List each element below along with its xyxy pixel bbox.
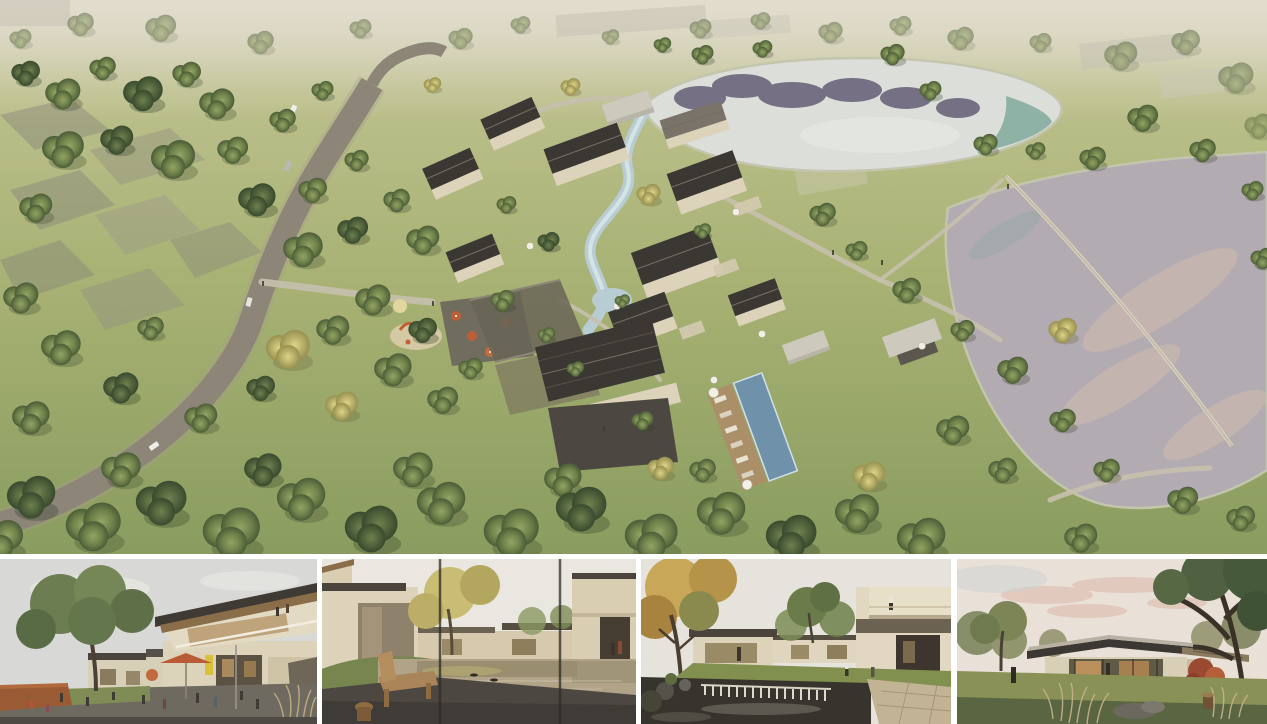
- stool-base: [357, 707, 371, 721]
- person: [163, 699, 166, 709]
- courtyard-street-rendering: [0, 559, 317, 724]
- thumbnail-garden-waterfall: [641, 559, 951, 724]
- rock: [679, 679, 691, 691]
- balcony-slab: [869, 615, 951, 619]
- person: [60, 693, 63, 702]
- tree-canopy: [110, 589, 154, 633]
- tree-canopy: [68, 597, 116, 645]
- upper-balcony: [869, 587, 951, 617]
- tree-canopy: [460, 565, 500, 605]
- person: [214, 697, 217, 707]
- roof-slab: [572, 573, 636, 579]
- tree-canopy: [1153, 569, 1189, 605]
- bench-leg: [384, 689, 389, 707]
- balcony-slab: [572, 613, 636, 617]
- walking-person: [618, 641, 622, 654]
- tree-canopy: [16, 609, 56, 649]
- person: [881, 260, 883, 265]
- white-umbrella: [919, 343, 926, 350]
- lit-window: [222, 659, 234, 677]
- orange-umbrella: [467, 331, 477, 341]
- glass-pavilion-rendering: [957, 559, 1267, 724]
- bench-leg: [426, 683, 431, 699]
- moss-shrub: [665, 673, 677, 685]
- tree-canopy: [810, 582, 840, 612]
- person: [1007, 184, 1009, 189]
- koi: [490, 679, 498, 682]
- person: [112, 692, 115, 700]
- play-equipment: [406, 340, 411, 345]
- reflection: [701, 703, 821, 715]
- white-umbrella: [759, 331, 766, 338]
- cloud: [200, 571, 300, 591]
- tree-canopy: [679, 591, 719, 631]
- reflection: [651, 712, 711, 722]
- rendering-board: [0, 0, 1267, 724]
- child: [30, 701, 33, 708]
- balcony-person: [286, 604, 289, 613]
- person: [142, 695, 145, 704]
- person: [432, 301, 434, 306]
- person: [240, 691, 243, 700]
- lit-interior: [903, 641, 915, 663]
- person: [603, 426, 605, 431]
- rock: [641, 690, 662, 712]
- person: [196, 693, 199, 703]
- person-legs: [845, 669, 849, 676]
- aerial-masterplan-rendering: [0, 0, 1267, 554]
- water-sheen: [800, 117, 960, 153]
- lit-window: [244, 661, 256, 677]
- foreground-shadow: [0, 717, 317, 724]
- roof-slab: [322, 583, 406, 591]
- glass-reflection: [362, 607, 382, 661]
- person: [262, 281, 264, 286]
- shop-window: [100, 669, 116, 685]
- white-umbrella: [527, 243, 534, 250]
- garden-waterfall-rendering: [641, 559, 951, 724]
- white-umbrella: [711, 377, 718, 384]
- yellow-shop-sign: [205, 655, 213, 675]
- reflecting-pond-rendering: [322, 559, 636, 724]
- pavilion-glass: [791, 645, 809, 659]
- balcony-person-shirt: [889, 597, 893, 603]
- orange-umbrella: [146, 669, 158, 681]
- person: [256, 699, 259, 709]
- thumbnail-reflecting-pond: [322, 559, 636, 724]
- ghost-building: [0, 0, 70, 26]
- balcony-person: [276, 607, 279, 616]
- thumbnail-courtyard-street: [0, 559, 317, 724]
- building-reflection: [572, 661, 636, 683]
- walking-person: [611, 643, 615, 655]
- shop-roof: [88, 653, 146, 660]
- tree-canopy: [408, 593, 444, 629]
- person: [86, 697, 89, 706]
- shop-window: [126, 671, 140, 685]
- child: [46, 705, 49, 712]
- aerial-masterplan-panel: [0, 0, 1267, 554]
- shade-canopy: [393, 299, 407, 313]
- dark-opening: [896, 635, 940, 671]
- umbrella-top: [455, 315, 457, 317]
- right-villa: [572, 573, 636, 673]
- thumbnail-glass-pavilion: [957, 559, 1267, 724]
- person-inside: [737, 647, 741, 661]
- left-pavilion: [689, 629, 777, 665]
- white-umbrella: [733, 209, 740, 216]
- background-tree: [518, 607, 546, 635]
- background-tree: [550, 605, 574, 629]
- stump-top: [1202, 693, 1214, 698]
- koi: [470, 674, 478, 677]
- soffit-shadow: [856, 619, 951, 633]
- person: [871, 667, 875, 677]
- visitor-person: [1011, 667, 1016, 683]
- person: [832, 250, 834, 255]
- pavilion-glass: [512, 639, 536, 655]
- glass-wall: [705, 643, 757, 663]
- cantilever-building: [856, 587, 951, 677]
- pavilion-glass: [827, 645, 847, 659]
